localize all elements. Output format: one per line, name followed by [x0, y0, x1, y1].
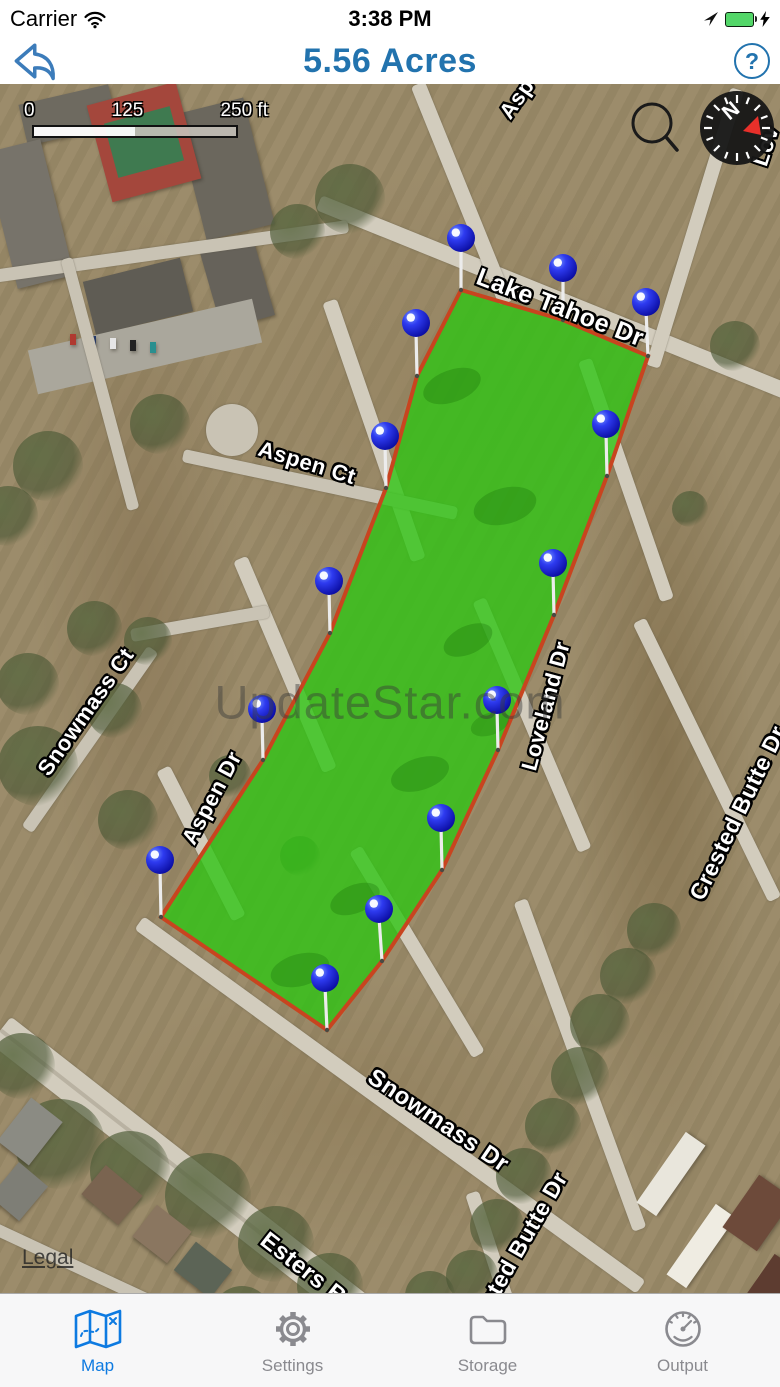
tab-settings[interactable]: Settings	[195, 1294, 390, 1387]
charging-bolt-icon	[760, 11, 770, 27]
tab-storage-label: Storage	[458, 1356, 518, 1376]
page-title: 5.56 Acres	[303, 42, 477, 81]
battery-icon	[725, 12, 754, 27]
compass[interactable]: N	[698, 89, 776, 167]
legal-link[interactable]: Legal	[22, 1246, 73, 1270]
scale-middle: 125	[112, 100, 144, 122]
tab-output-label: Output	[657, 1356, 708, 1376]
tab-output[interactable]: Output	[585, 1294, 780, 1387]
clock: 3:38 PM	[0, 6, 780, 32]
map-icon	[72, 1307, 124, 1351]
scale-start: 0	[24, 100, 35, 122]
tab-map-label: Map	[81, 1356, 114, 1376]
status-bar: Carrier 3:38 PM	[0, 0, 780, 38]
carrier-label: Carrier	[10, 6, 77, 32]
search-button[interactable]	[627, 100, 683, 156]
wifi-icon	[83, 10, 107, 29]
compass-icon: N	[698, 89, 776, 167]
tab-settings-label: Settings	[262, 1356, 323, 1376]
search-icon	[627, 100, 683, 156]
settings-gear-icon	[271, 1307, 315, 1351]
scale-end: 250 ft	[220, 100, 268, 122]
header: 5.56 Acres ?	[0, 38, 780, 84]
back-arrow-icon	[8, 40, 58, 82]
satellite-map[interactable]: AspLovLake Tahoe DrAspen CtSnowmass CtAs…	[0, 84, 780, 1293]
help-button[interactable]: ?	[734, 43, 770, 79]
tab-storage[interactable]: Storage	[390, 1294, 585, 1387]
tab-map[interactable]: Map	[0, 1294, 195, 1387]
help-label: ?	[745, 48, 759, 75]
storage-folder-icon	[464, 1307, 512, 1351]
scale-bar: 0 125 250 ft	[24, 100, 268, 138]
tab-bar: Map Settings Storage	[0, 1293, 780, 1387]
output-gauge-icon	[661, 1307, 705, 1351]
watermark: UpdateStar.com	[214, 675, 565, 730]
map-pin[interactable]	[447, 224, 475, 292]
measured-area-polygon[interactable]	[161, 290, 648, 1030]
location-arrow-icon	[703, 11, 719, 27]
back-button[interactable]	[4, 38, 62, 84]
